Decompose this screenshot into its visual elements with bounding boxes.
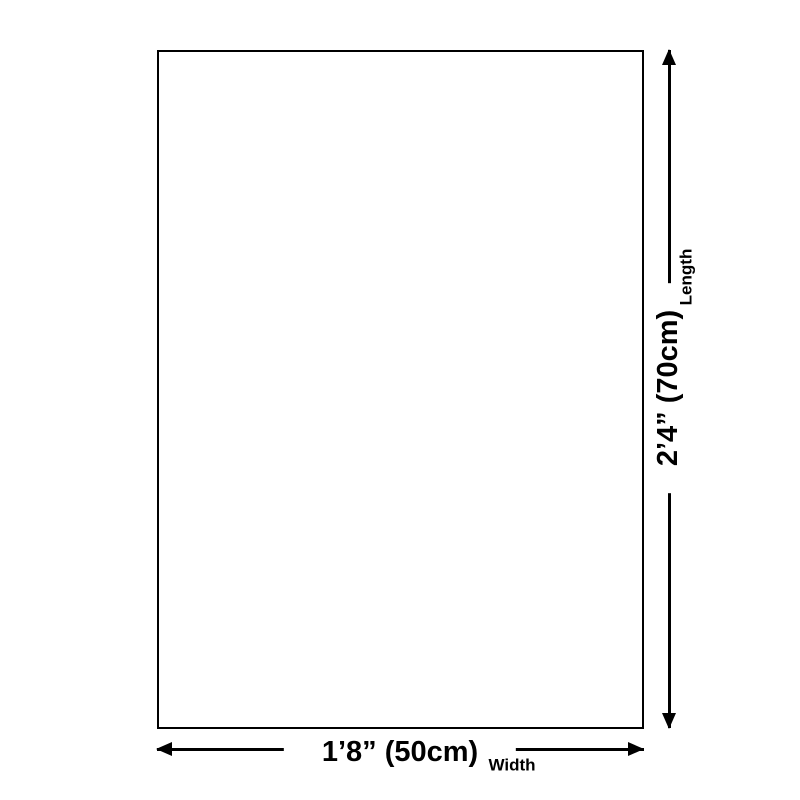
arrow-up-icon <box>662 49 676 65</box>
length-axis-label: Length <box>678 249 695 306</box>
arrow-left-icon <box>156 742 172 756</box>
product-size-diagram: 2’4” (70cm) Length 1’8” (50cm) Width <box>0 0 800 800</box>
product-outline <box>157 50 644 729</box>
arrow-right-icon <box>628 742 644 756</box>
width-value-label: 1’8” (50cm) <box>284 737 516 769</box>
width-axis-label: Width <box>488 757 535 774</box>
length-value-label: 2’4” (70cm) <box>653 283 685 493</box>
arrow-down-icon <box>662 713 676 729</box>
